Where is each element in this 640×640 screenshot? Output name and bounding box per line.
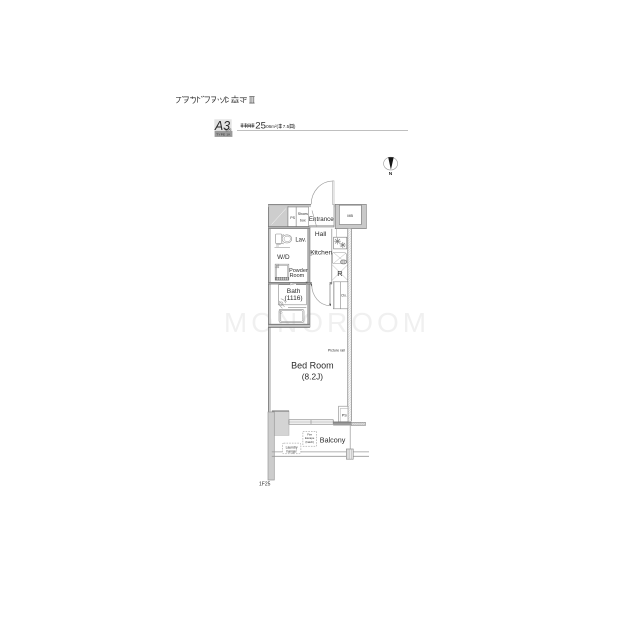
svg-text:N: N	[389, 171, 393, 177]
svg-text:W/D: W/D	[277, 254, 290, 261]
svg-text:hanger: hanger	[286, 450, 297, 454]
svg-text:.06m²(: .06m²(	[265, 124, 279, 129]
svg-text:Kitchen: Kitchen	[310, 250, 332, 257]
svg-text:Picture rail: Picture rail	[328, 348, 345, 352]
svg-text:Lav.: Lav.	[295, 238, 306, 244]
svg-text:PS: PS	[342, 413, 348, 417]
svg-text:R: R	[337, 269, 343, 278]
svg-text:Balcony: Balcony	[320, 436, 346, 445]
svg-text:PS: PS	[290, 216, 295, 220]
svg-text:Clo.: Clo.	[341, 294, 347, 298]
svg-text:Hall: Hall	[315, 231, 327, 238]
svg-text:MB: MB	[347, 214, 353, 218]
svg-text:MONOROOM: MONOROOM	[224, 307, 430, 338]
svg-text:Room: Room	[290, 273, 305, 279]
svg-text:(hatch): (hatch)	[305, 440, 314, 444]
svg-text:Bed Room: Bed Room	[291, 361, 334, 371]
svg-text:TYPE 1K: TYPE 1K	[216, 133, 230, 137]
svg-text:(1116): (1116)	[285, 295, 303, 302]
svg-text:Entrance: Entrance	[309, 216, 334, 223]
svg-text:box: box	[300, 219, 306, 223]
svg-text:7.5: 7.5	[283, 124, 290, 129]
svg-text:Shoes: Shoes	[298, 212, 308, 216]
svg-text:1F25: 1F25	[259, 482, 271, 488]
svg-text:(8.2J): (8.2J)	[302, 372, 323, 382]
svg-text:type: type	[225, 127, 232, 131]
